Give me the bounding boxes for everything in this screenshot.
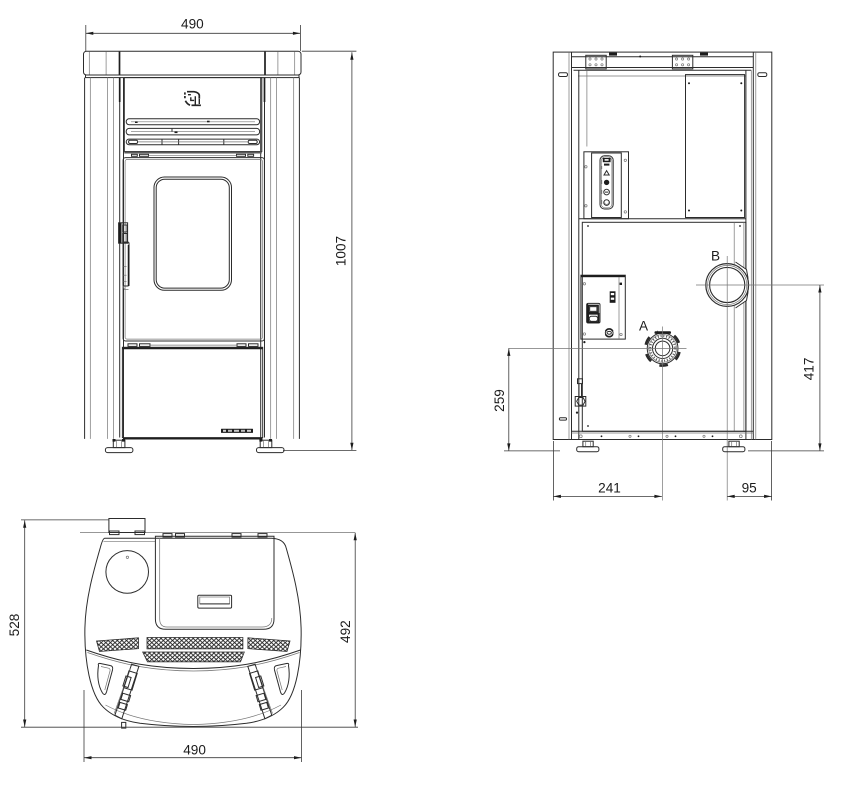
svg-text:492: 492 [338,620,353,643]
svg-text:B: B [711,249,720,264]
svg-text:417: 417 [801,358,816,381]
svg-text:241: 241 [598,481,621,496]
svg-text:528: 528 [7,614,22,637]
svg-text:95: 95 [742,481,757,496]
svg-text:490: 490 [181,17,204,32]
svg-text:259: 259 [492,389,507,412]
svg-text:1007: 1007 [333,236,348,266]
svg-text:A: A [639,319,649,334]
svg-text:490: 490 [183,743,206,758]
